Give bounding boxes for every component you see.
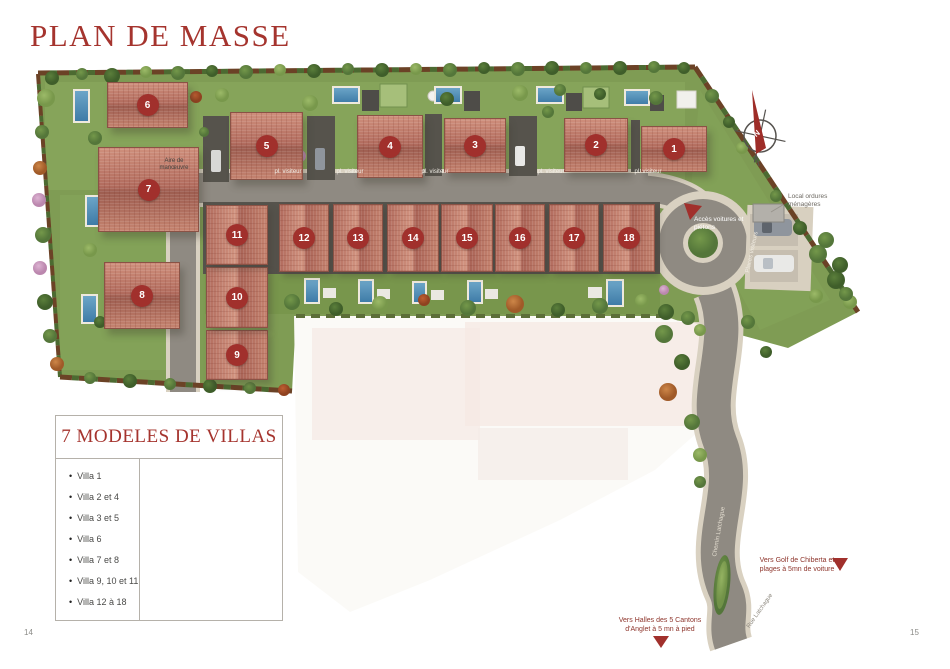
legend-divider <box>139 459 140 621</box>
villa-badge: 10 <box>226 287 248 309</box>
legend-item-label: Villa 7 et 8 <box>77 555 119 565</box>
legend-box: 7 MODELES DE VILLAS •Villa 1 •Villa 2 et… <box>55 415 283 621</box>
villa-16: 16 <box>495 204 545 272</box>
bullet-icon: • <box>69 492 72 502</box>
bullet-icon: • <box>69 534 72 544</box>
legend-item: •Villa 1 <box>69 471 282 481</box>
canopy <box>677 91 696 108</box>
road-label-visitor: pl. visiteur <box>266 169 310 176</box>
terrace <box>566 93 582 111</box>
car <box>315 148 325 170</box>
villa-badge: 11 <box>226 224 248 246</box>
road-label-visitor: pl. visiteur <box>328 169 372 176</box>
north-needle <box>752 90 766 154</box>
maneuver-area-label: Aire de manœuvre <box>150 158 198 172</box>
bullet-icon: • <box>69 513 72 523</box>
villa-9: 9 <box>206 330 268 380</box>
villa-badge: 14 <box>402 227 424 249</box>
villa-badge: 3 <box>464 135 486 157</box>
road-label-visitor: pl. visiteur <box>413 169 457 176</box>
terrace <box>588 287 602 298</box>
villa-badge: 13 <box>347 227 369 249</box>
villa-8: 8 <box>104 262 180 329</box>
page-title: PLAN DE MASSE <box>30 18 291 54</box>
waste-room-label: Local ordures ménagères <box>788 193 850 209</box>
villa-18: 18 <box>603 204 655 272</box>
car <box>515 146 525 166</box>
legend-item-label: Villa 12 à 18 <box>77 597 126 607</box>
bullet-icon: • <box>69 555 72 565</box>
road-label-visitor: pl. visiteur <box>626 169 670 176</box>
villa-badge: 8 <box>131 285 153 307</box>
legend-item: •Villa 9, 10 et 11 <box>69 576 282 586</box>
villa-badge: 9 <box>226 344 248 366</box>
villa-17: 17 <box>549 204 599 272</box>
villa-badge: 6 <box>137 94 159 116</box>
legend-item: •Villa 3 et 5 <box>69 513 282 523</box>
garage-roof <box>380 84 407 107</box>
bullet-icon: • <box>69 576 72 586</box>
legend-item-label: Villa 1 <box>77 471 101 481</box>
direction-marker-halles <box>653 636 669 648</box>
legend-item: •Villa 7 et 8 <box>69 555 282 565</box>
villa-13: 13 <box>333 204 383 272</box>
villa-badge: 7 <box>138 179 160 201</box>
car <box>211 150 221 172</box>
legend-item: •Villa 2 et 4 <box>69 492 282 502</box>
legend-item: •Villa 12 à 18 <box>69 597 282 607</box>
villa-badge: 15 <box>456 227 478 249</box>
villa-badge: 12 <box>293 227 315 249</box>
villa-badge: 5 <box>256 135 278 157</box>
direction-note-golf: Vers Golf de Chiberta et plages à 5mn de… <box>754 557 840 575</box>
villa-12: 12 <box>279 204 329 272</box>
villa-badge: 1 <box>663 138 685 160</box>
direction-note-halles: Vers Halles des 5 Cantons d'Anglet à 5 m… <box>612 617 708 635</box>
bullet-icon: • <box>69 597 72 607</box>
villa-14: 14 <box>387 204 439 272</box>
villa-1: 1 <box>641 126 707 172</box>
legend-item-label: Villa 9, 10 et 11 <box>77 576 138 586</box>
legend-list: •Villa 1 •Villa 2 et 4 •Villa 3 et 5 •Vi… <box>56 459 282 607</box>
villa-15: 15 <box>441 204 493 272</box>
villa-11: 11 <box>206 205 268 265</box>
villa-badge: 16 <box>509 227 531 249</box>
neighbour-parcel <box>294 316 703 612</box>
road-label-visitor: pl. visiteur <box>529 169 573 176</box>
legend-item-label: Villa 6 <box>77 534 101 544</box>
villa-badge: 17 <box>563 227 585 249</box>
page-number-right: 15 <box>910 628 919 637</box>
legend-item-label: Villa 2 et 4 <box>77 492 119 502</box>
terrace <box>362 90 379 111</box>
terrace <box>485 289 498 299</box>
villa-6: 6 <box>107 82 188 128</box>
terrace <box>323 288 336 298</box>
legend-body: •Villa 1 •Villa 2 et 4 •Villa 3 et 5 •Vi… <box>56 459 282 621</box>
villa-10: 10 <box>206 267 268 328</box>
brochure-page: 1 2 3 4 5 6 7 8 9 10 11 12 13 14 15 16 1… <box>0 0 950 669</box>
villa-badge: 2 <box>585 134 607 156</box>
villa-3: 3 <box>444 118 506 173</box>
villa-2: 2 <box>564 118 628 172</box>
roundabout <box>651 191 755 295</box>
page-number-left: 14 <box>24 628 33 637</box>
villa-badge: 18 <box>618 227 640 249</box>
legend-item: •Villa 6 <box>69 534 282 544</box>
access-label: Accès voitures et piétons <box>694 216 748 232</box>
legend-item-label: Villa 3 et 5 <box>77 513 119 523</box>
legend-title: 7 MODELES DE VILLAS <box>56 416 282 459</box>
terrace <box>431 290 444 300</box>
terrace <box>464 91 480 111</box>
bullet-icon: • <box>69 471 72 481</box>
villa-badge: 4 <box>379 136 401 158</box>
